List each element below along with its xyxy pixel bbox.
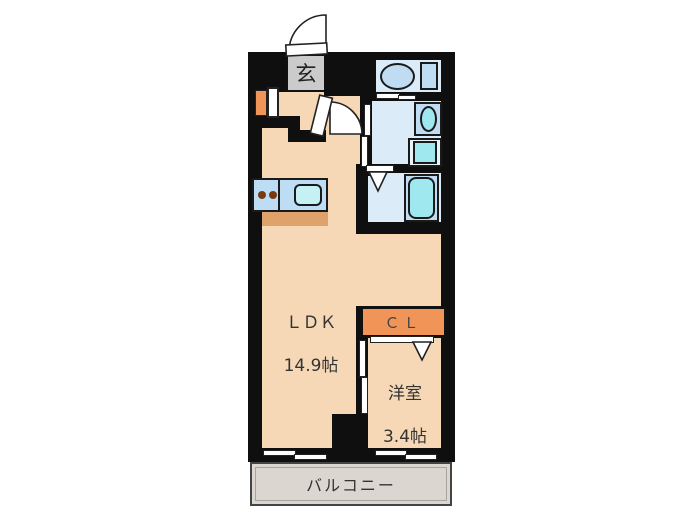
- western-room-name: 洋室: [366, 384, 444, 405]
- western-room-label: 洋室 3.4帖: [366, 363, 444, 469]
- ldk-name: ＬＤＫ: [262, 313, 360, 334]
- ldk-door-arc: [330, 102, 362, 134]
- ldk-size: 14.9帖: [262, 356, 360, 377]
- closet-folding-door-mark: [413, 342, 431, 360]
- ldk-door-leaf: [310, 95, 332, 136]
- floorplan-canvas: { "title": "floor-plan", "rooms": { "ent…: [0, 0, 700, 525]
- western-room-size: 3.4帖: [366, 427, 444, 448]
- ldk-label: ＬＤＫ 14.9帖: [262, 292, 360, 398]
- bath-folding-door-mark: [369, 172, 387, 191]
- door-swing-overlay: [0, 0, 700, 525]
- entrance-door-leaf: [286, 43, 328, 56]
